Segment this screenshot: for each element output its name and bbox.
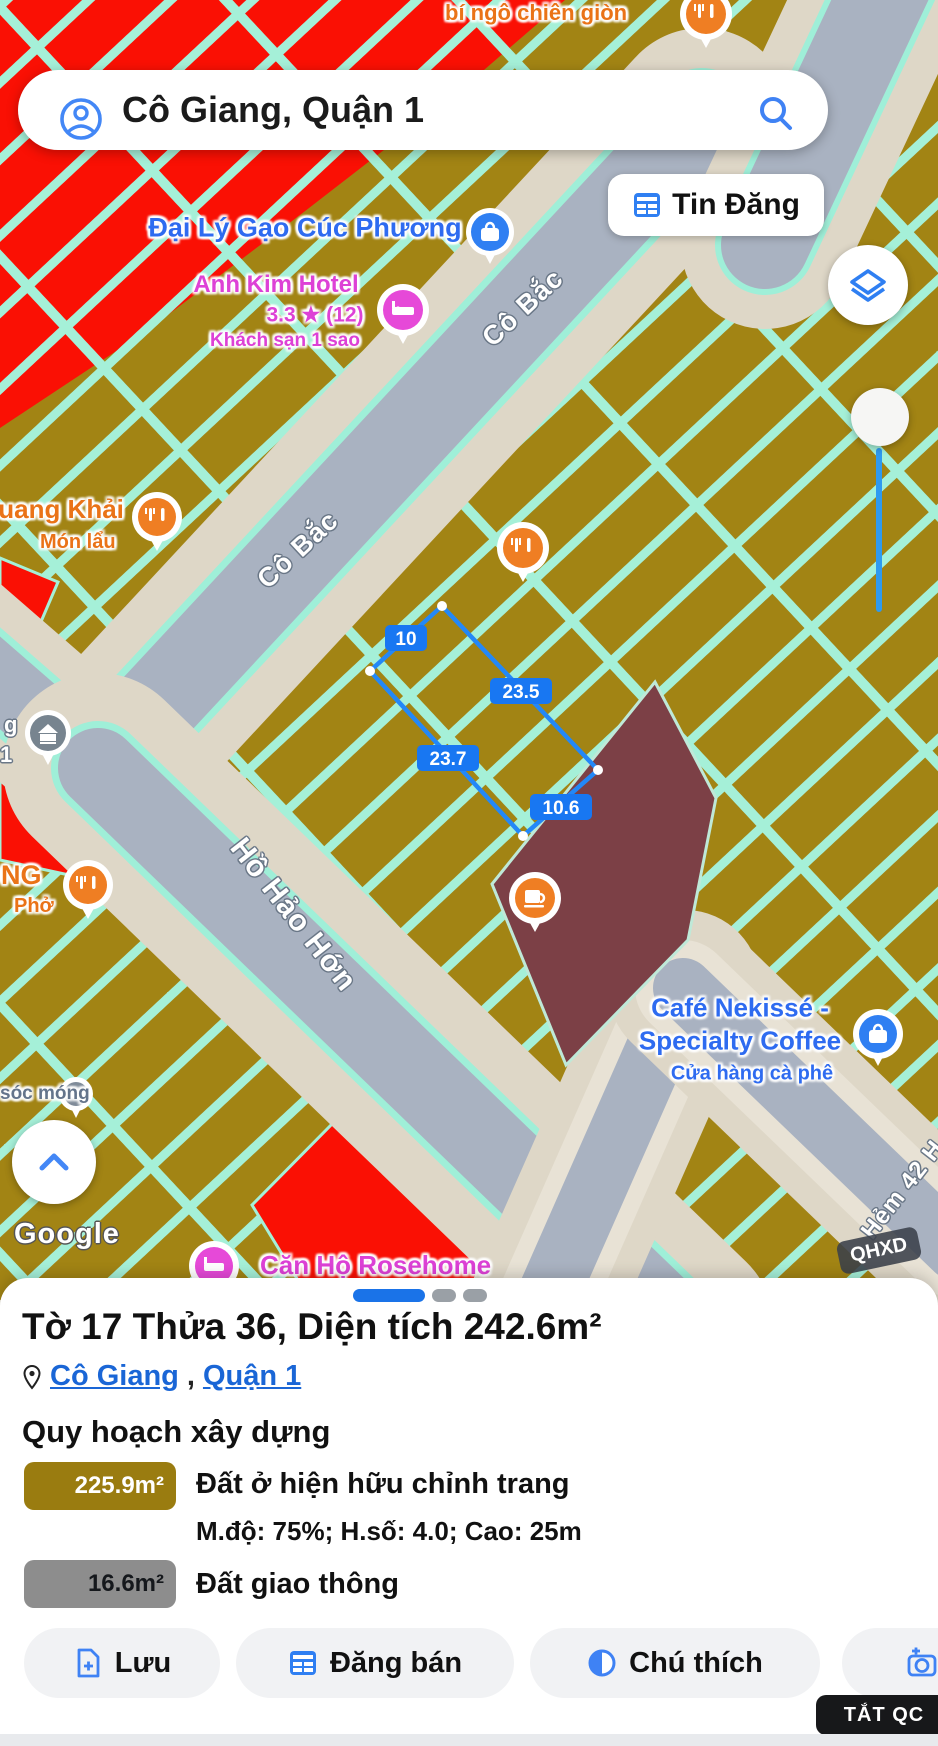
section-heading: Quy hoạch xây dựng — [22, 1414, 330, 1450]
measure-badge-10: 10 — [385, 625, 427, 651]
zoom-slider-knob[interactable] — [851, 388, 909, 446]
legend-label-residential: Đất ở hiện hữu chỉnh trang — [196, 1468, 570, 1501]
page-dot-active[interactable] — [353, 1289, 425, 1302]
ad-close-button[interactable]: TẮT QC — [816, 1695, 938, 1735]
camera-button[interactable] — [842, 1628, 938, 1698]
legend-button-label: Chú thích — [629, 1647, 763, 1680]
layers-button[interactable] — [828, 245, 908, 325]
legend-area-traffic: 16.6m² — [88, 1570, 164, 1598]
poi-bi-ngo[interactable]: bí ngô chiên giòn — [445, 0, 627, 26]
legend-area-residential: 225.9m² — [75, 1472, 164, 1500]
page-dot-3[interactable] — [463, 1289, 487, 1302]
poi-soc-mong[interactable]: sóc móng — [0, 1083, 90, 1105]
half-circle-icon — [587, 1648, 617, 1678]
camera-plus-icon — [904, 1647, 938, 1679]
street-fragment-1: 1 — [0, 742, 13, 768]
poi-anh-kim-type: Khách sạn 1 sao — [210, 330, 360, 352]
app-screen: 10 23.5 23.7 10.6 bí ngô chiên giòn Đại … — [0, 0, 938, 1746]
svg-text:10.6: 10.6 — [543, 798, 580, 819]
save-label: Lưu — [115, 1647, 171, 1680]
poi-ong-type: Phở — [14, 895, 54, 918]
table-icon-2 — [288, 1648, 318, 1678]
google-watermark: Google — [14, 1218, 120, 1251]
parcel-location: Cô Giang, Quận 1 — [22, 1360, 301, 1393]
save-button[interactable]: Lưu — [24, 1628, 220, 1698]
poi-rosehome[interactable]: Căn Hộ Rosehome — [260, 1250, 491, 1281]
poi-nekisse-line2: Specialty Coffee — [639, 1026, 841, 1057]
chevron-up-icon — [34, 1149, 74, 1175]
measure-badge-23-5: 23.5 — [490, 678, 552, 704]
poi-nekisse-type: Cửa hàng cà phê — [671, 1063, 833, 1086]
poi-nekisse-line1[interactable]: Café Nekissé - — [651, 993, 829, 1024]
sell-label: Đăng bán — [330, 1647, 462, 1680]
page-dot-2[interactable] — [432, 1289, 456, 1302]
measure-badge-10-6: 10.6 — [530, 794, 592, 820]
poi-dai-ly[interactable]: Đại Lý Gạo Cúc Phương — [148, 213, 461, 244]
zoom-slider-track[interactable] — [876, 448, 882, 612]
search-bar[interactable]: Cô Giang, Quận 1 — [18, 70, 828, 150]
poi-ong[interactable]: ỒNG — [0, 860, 42, 891]
info-panel: Tờ 17 Thửa 36, Diện tích 242.6m² Cô Gian… — [0, 1278, 938, 1746]
poi-quang-khai[interactable]: Quang Khải — [0, 494, 124, 525]
legend-swatch-traffic: 16.6m² — [24, 1560, 176, 1608]
tin-dang-label: Tin Đăng — [672, 188, 800, 222]
poi-anh-kim-rating: 3.3 ★ (12) — [266, 303, 363, 328]
table-icon — [632, 190, 662, 220]
collapse-button[interactable] — [12, 1120, 96, 1204]
svg-text:10: 10 — [395, 629, 416, 650]
tin-dang-button[interactable]: Tin Đăng — [608, 174, 824, 236]
bottom-bar — [0, 1734, 938, 1746]
location-pin-icon — [22, 1364, 42, 1390]
district-link[interactable]: Quận 1 — [203, 1360, 301, 1393]
poi-anh-kim-name[interactable]: Anh Kim Hotel — [193, 271, 358, 299]
layers-icon — [846, 263, 890, 307]
svg-text:23.5: 23.5 — [503, 682, 540, 703]
location-comma: , — [187, 1360, 195, 1393]
legend-label-traffic: Đất giao thông — [196, 1568, 399, 1601]
legend-button[interactable]: Chú thích — [530, 1628, 820, 1698]
measure-badge-23-7: 23.7 — [417, 745, 479, 771]
legend-detail-residential: M.độ: 75%; H.số: 4.0; Cao: 25m — [196, 1516, 582, 1547]
poi-quang-khai-type: Món lẩu — [40, 531, 116, 554]
document-plus-icon — [73, 1647, 103, 1679]
sell-button[interactable]: Đăng bán — [236, 1628, 514, 1698]
person-icon — [58, 96, 104, 142]
search-icon[interactable] — [756, 94, 796, 134]
legend-swatch-residential: 225.9m² — [24, 1462, 176, 1510]
ward-link[interactable]: Cô Giang — [50, 1360, 179, 1393]
street-fragment-g: g — [4, 712, 18, 738]
svg-text:23.7: 23.7 — [430, 749, 467, 770]
parcel-title: Tờ 17 Thửa 36, Diện tích 242.6m² — [22, 1306, 602, 1348]
search-query[interactable]: Cô Giang, Quận 1 — [122, 89, 424, 131]
